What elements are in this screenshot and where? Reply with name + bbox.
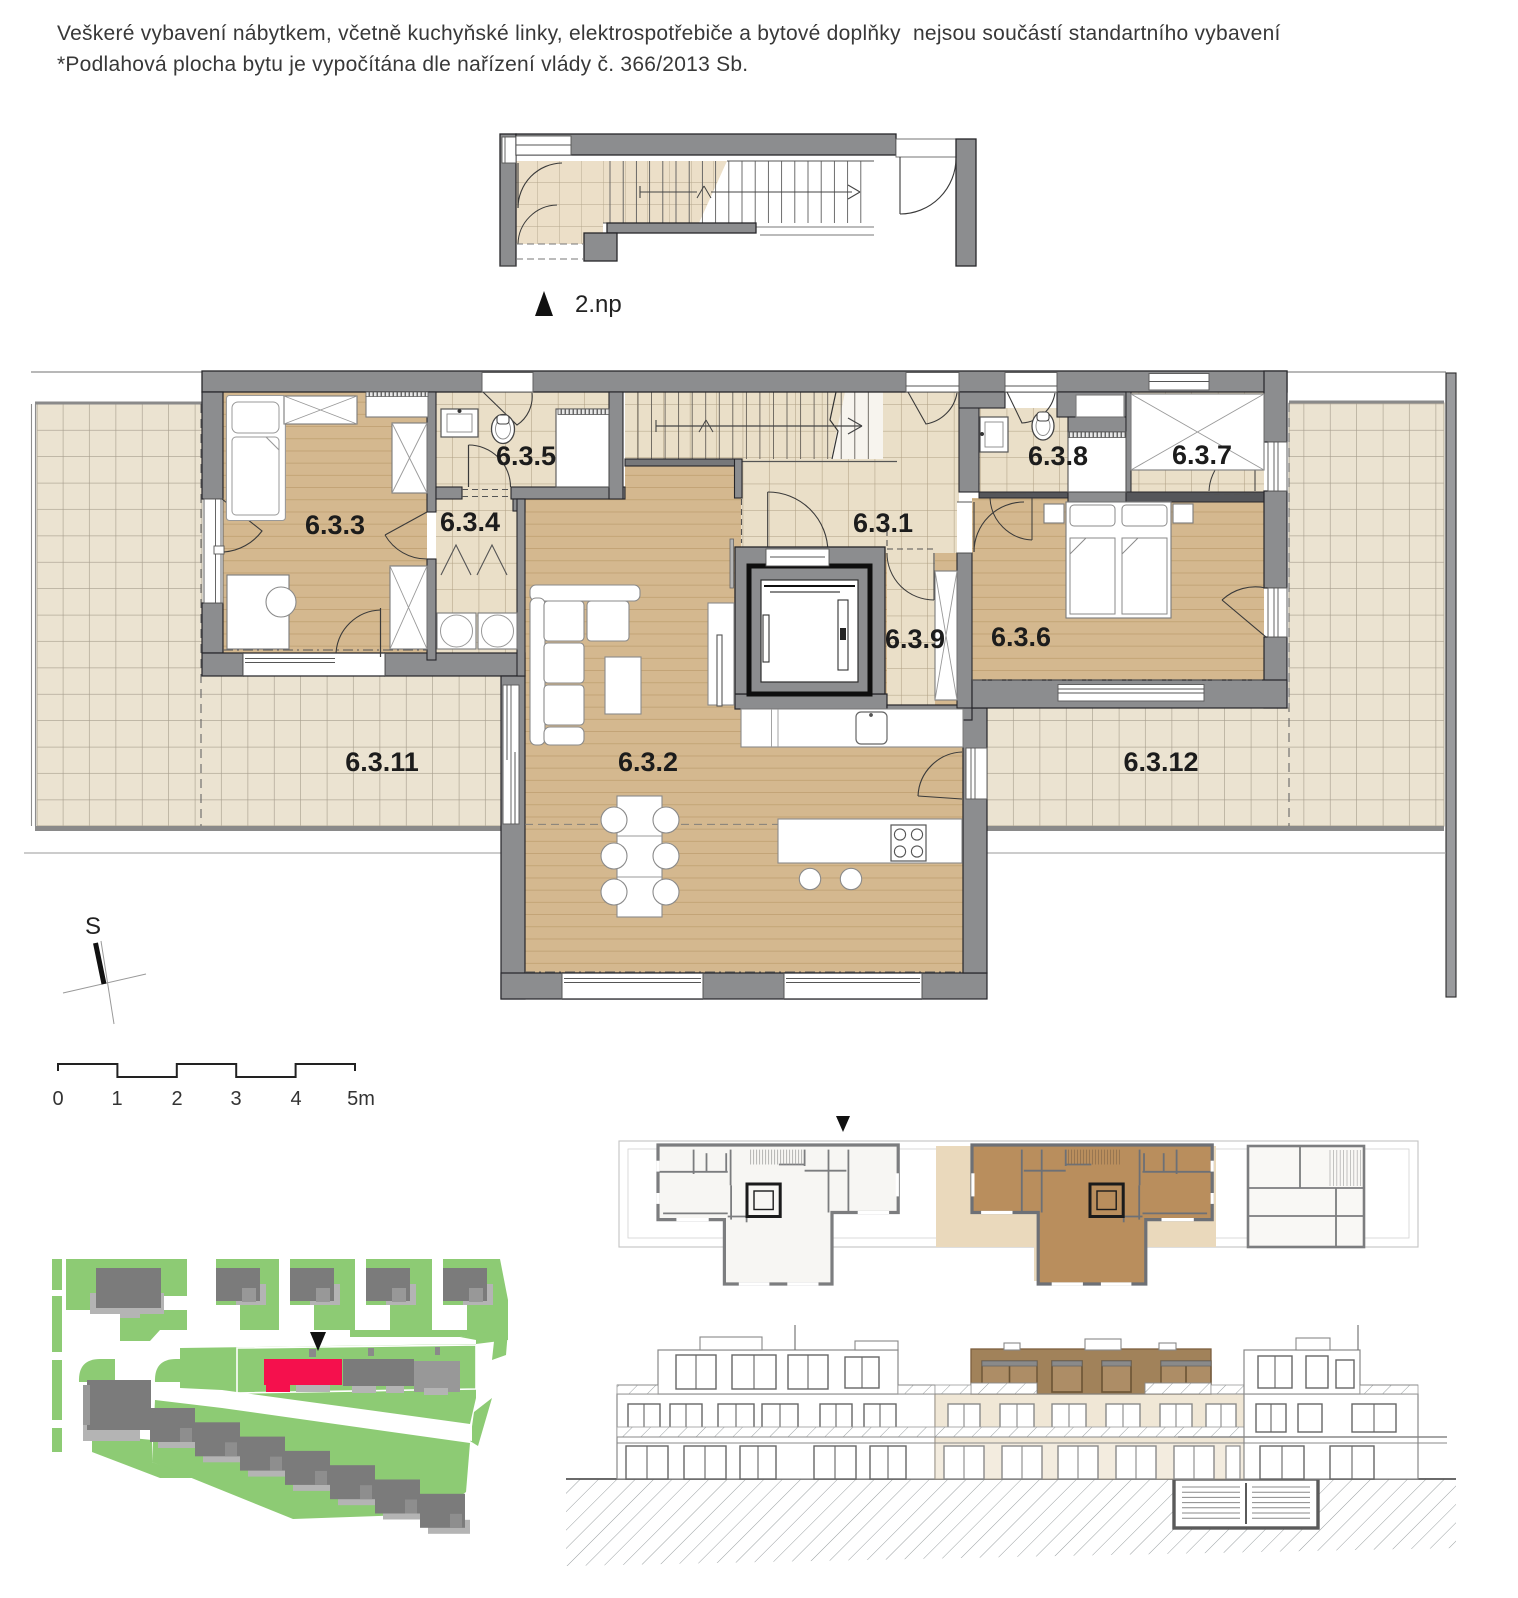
- svg-text:5m: 5m: [347, 1088, 375, 1110]
- svg-text:2.np: 2.np: [575, 291, 622, 318]
- svg-text:6.3.12: 6.3.12: [1123, 747, 1198, 777]
- svg-text:3: 3: [230, 1088, 241, 1110]
- svg-text:0: 0: [52, 1088, 63, 1110]
- svg-text:6.3.1: 6.3.1: [853, 508, 913, 538]
- svg-text:6.3.8: 6.3.8: [1028, 441, 1088, 471]
- svg-text:1: 1: [111, 1088, 122, 1110]
- svg-text:S: S: [85, 913, 101, 940]
- svg-text:6.3.6: 6.3.6: [991, 622, 1051, 652]
- svg-text:6.3.11: 6.3.11: [345, 747, 419, 777]
- svg-text:Veškeré vybavení nábytkem, vče: Veškeré vybavení nábytkem, včetně kuchyň…: [57, 22, 1281, 45]
- svg-text:*Podlahová plocha bytu je vypo: *Podlahová plocha bytu je vypočítána dle…: [57, 53, 748, 76]
- svg-text:2: 2: [171, 1088, 182, 1110]
- svg-text:4: 4: [290, 1088, 301, 1110]
- svg-text:6.3.2: 6.3.2: [618, 747, 678, 777]
- svg-text:6.3.7: 6.3.7: [1172, 440, 1232, 470]
- svg-text:6.3.3: 6.3.3: [305, 510, 365, 540]
- svg-text:6.3.9: 6.3.9: [885, 624, 945, 654]
- svg-text:6.3.5: 6.3.5: [496, 441, 556, 471]
- svg-text:6.3.4: 6.3.4: [440, 507, 500, 537]
